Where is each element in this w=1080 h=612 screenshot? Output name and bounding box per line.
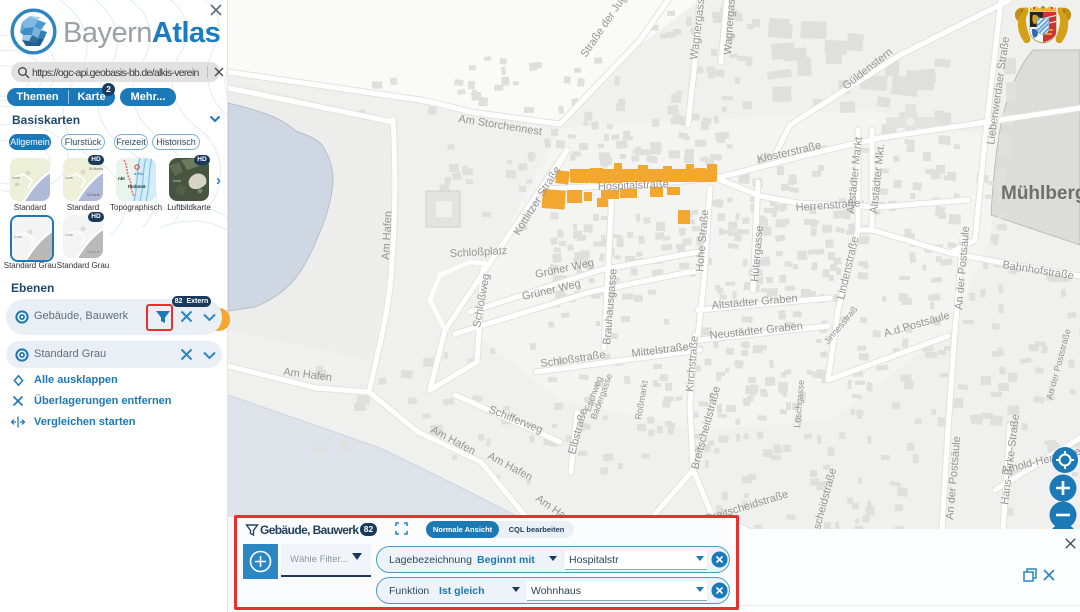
svg-text:St.Barth: St.Barth [87,193,100,197]
svg-text:nkt: nkt [118,176,125,181]
svg-text:lomä: lomä [14,235,22,239]
svg-text:tholomä: tholomä [128,184,146,189]
svg-text:Mühlberg: Mühlberg [1001,183,1080,204]
svg-text:a.Wa: a.Wa [134,171,144,176]
svg-text:lomä: lomä [65,233,73,237]
svg-text:Am Hafen: Am Hafen [380,211,395,260]
svg-text:lomä: lomä [173,179,181,183]
svg-text:lomä: lomä [12,176,20,180]
svg-text:St.Barth: St.Barth [87,250,100,254]
svg-text:Hospitalstraße: Hospitalstraße [598,179,669,193]
svg-text:lomä: lomä [65,176,73,180]
svg-text:St.Martin: St.Martin [89,167,103,171]
